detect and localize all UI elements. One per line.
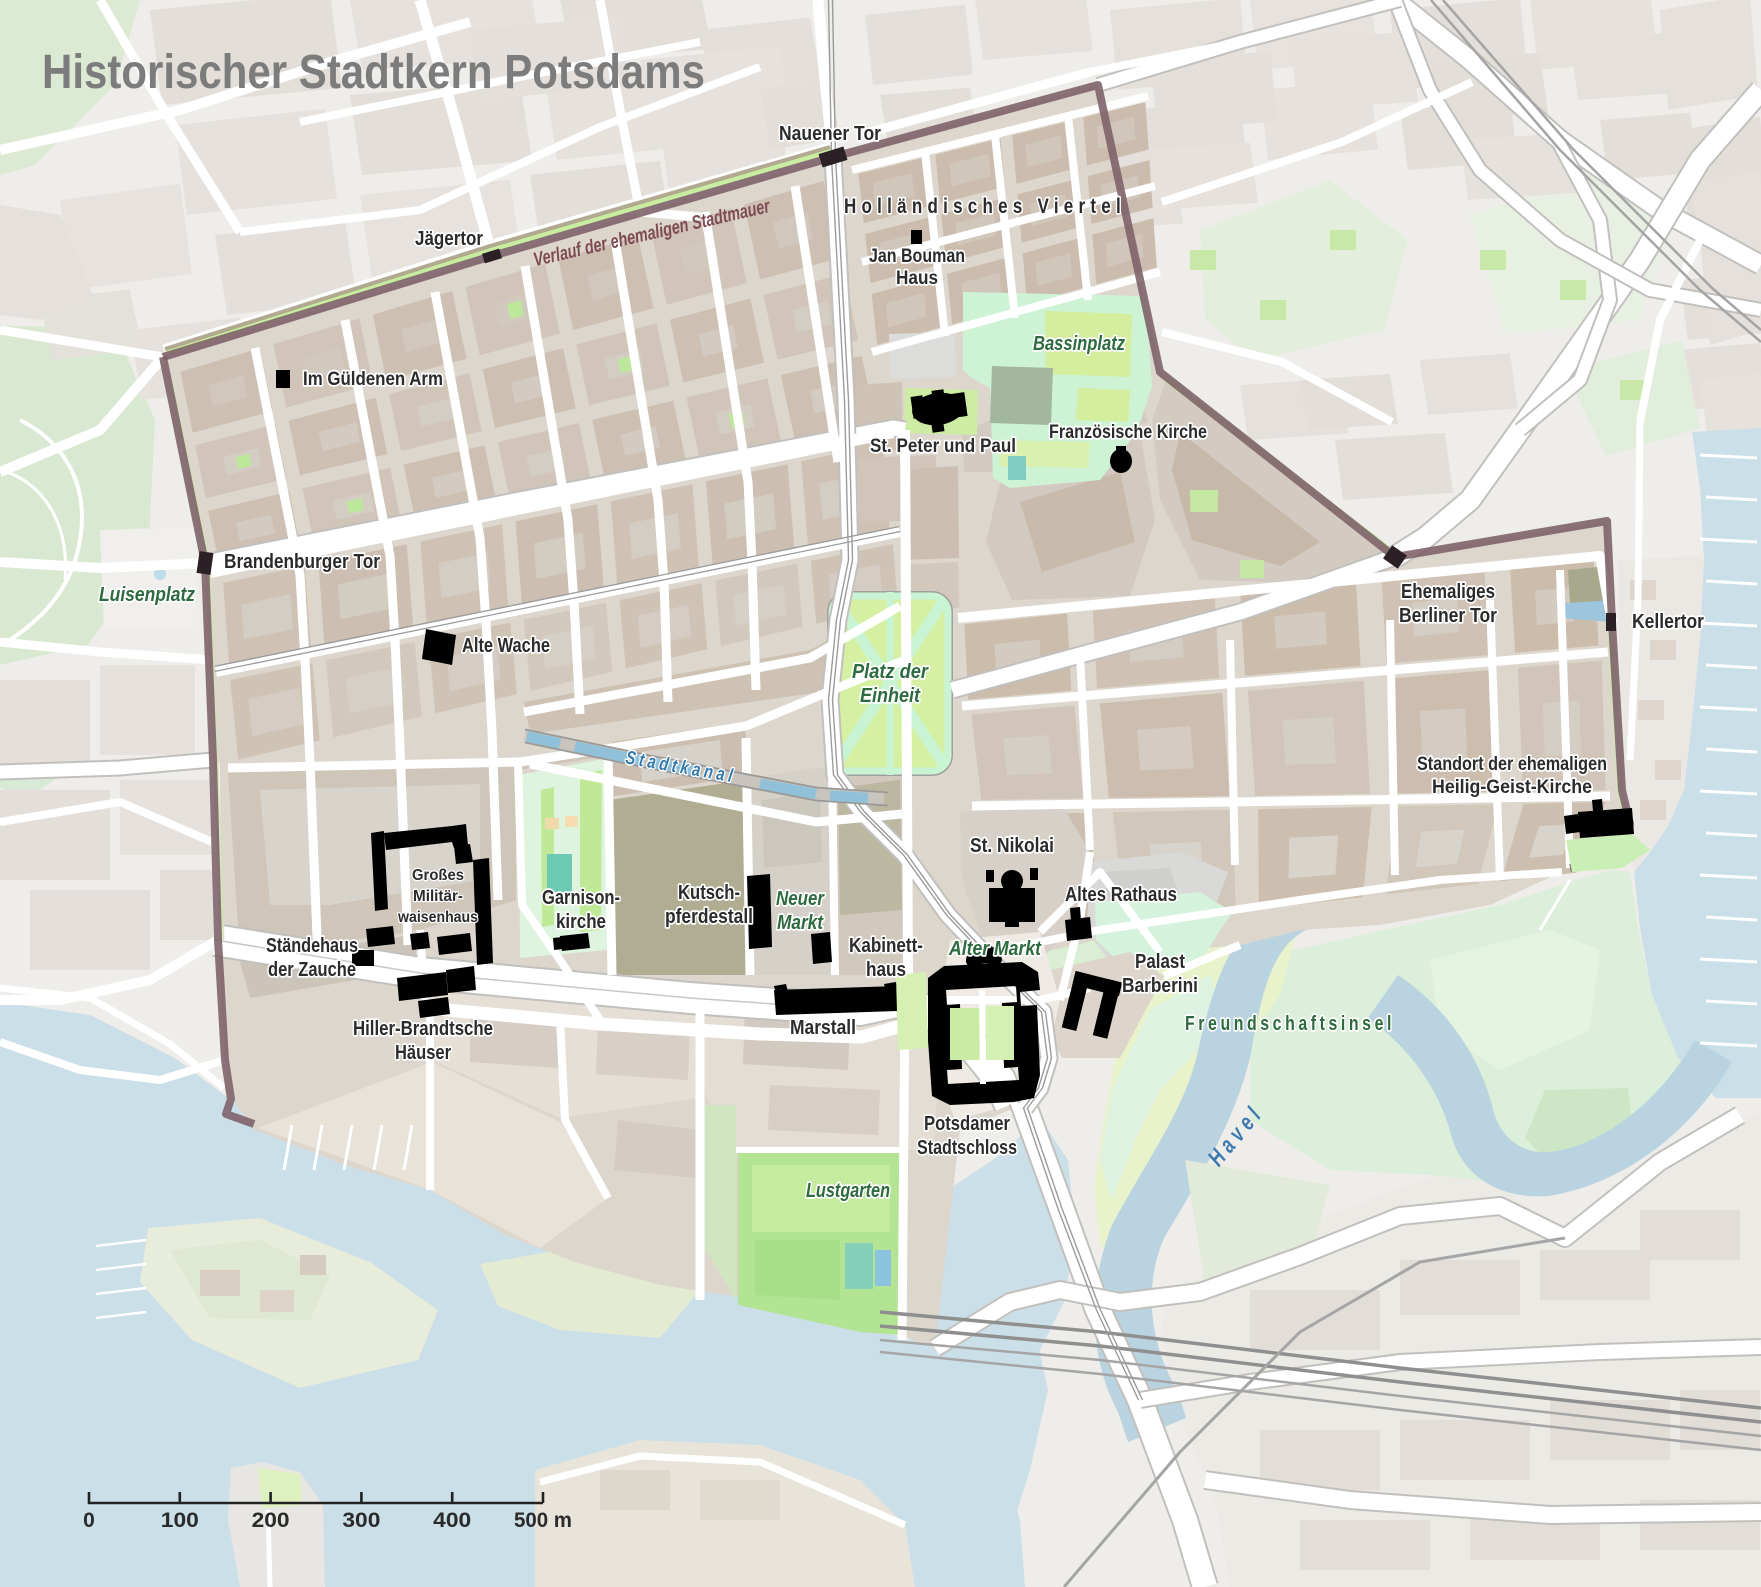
svg-text:Ehemaliges: Ehemaliges <box>1401 581 1495 603</box>
svg-text:Haus: Haus <box>896 268 938 289</box>
svg-text:Neuer: Neuer <box>776 888 825 910</box>
svg-text:Stadtschloss: Stadtschloss <box>917 1137 1017 1159</box>
svg-text:Standort der ehemaligen: Standort der ehemaligen <box>1417 754 1607 775</box>
svg-text:Barberini: Barberini <box>1122 975 1198 997</box>
svg-text:Bassinplatz: Bassinplatz <box>1033 333 1125 355</box>
svg-text:Französische Kirche: Französische Kirche <box>1049 422 1207 443</box>
svg-text:Häuser: Häuser <box>395 1042 451 1064</box>
svg-text:Marstall: Marstall <box>790 1017 856 1039</box>
svg-text:Berliner Tor: Berliner Tor <box>1399 605 1497 627</box>
svg-text:Markt: Markt <box>777 912 824 934</box>
svg-text:pferdestall: pferdestall <box>665 906 753 928</box>
svg-text:500 m: 500 m <box>514 1509 572 1532</box>
svg-text:Ständehaus: Ständehaus <box>266 935 358 957</box>
svg-text:haus: haus <box>866 959 906 981</box>
svg-text:Luisenplatz: Luisenplatz <box>99 584 195 606</box>
svg-text:Platz der: Platz der <box>852 661 929 683</box>
svg-text:Nauener Tor: Nauener Tor <box>779 123 881 145</box>
svg-text:Garnison-: Garnison- <box>542 887 620 909</box>
svg-text:Kabinett-: Kabinett- <box>849 935 923 957</box>
svg-text:Historischer Stadtkern Potsdam: Historischer Stadtkern Potsdams <box>42 46 705 99</box>
svg-text:400: 400 <box>433 1509 471 1532</box>
svg-text:200: 200 <box>252 1509 290 1532</box>
svg-text:Im Güldenen Arm: Im Güldenen Arm <box>303 369 443 390</box>
svg-text:Holländisches Viertel: Holländisches Viertel <box>844 195 1126 218</box>
svg-text:Lustgarten: Lustgarten <box>806 1180 890 1202</box>
svg-text:Freundschaftsinsel: Freundschaftsinsel <box>1185 1013 1395 1035</box>
svg-text:Brandenburger Tor: Brandenburger Tor <box>224 551 380 573</box>
svg-text:kirche: kirche <box>556 911 606 933</box>
svg-text:100: 100 <box>161 1509 199 1532</box>
svg-text:Hiller-Brandtsche: Hiller-Brandtsche <box>353 1018 493 1040</box>
svg-text:Alter Markt: Alter Markt <box>948 938 1042 960</box>
svg-text:Kellertor: Kellertor <box>1632 611 1704 633</box>
svg-text:300: 300 <box>342 1509 380 1532</box>
svg-text:Alte Wache: Alte Wache <box>462 635 550 657</box>
svg-text:Militär-: Militär- <box>413 888 463 905</box>
svg-text:St. Nikolai: St. Nikolai <box>970 835 1054 857</box>
svg-text:waisenhaus: waisenhaus <box>397 909 478 926</box>
svg-text:Heilig-Geist-Kirche: Heilig-Geist-Kirche <box>1432 777 1592 798</box>
svg-text:der Zauche: der Zauche <box>268 959 356 981</box>
svg-text:Potsdamer: Potsdamer <box>924 1113 1010 1135</box>
svg-text:Kutsch-: Kutsch- <box>678 882 740 904</box>
svg-text:Großes: Großes <box>412 867 464 884</box>
svg-text:0: 0 <box>83 1509 95 1532</box>
svg-text:Altes Rathaus: Altes Rathaus <box>1065 884 1177 906</box>
svg-text:Jan Bouman: Jan Bouman <box>869 246 965 267</box>
svg-text:Einheit: Einheit <box>860 685 921 707</box>
svg-text:St. Peter und Paul: St. Peter und Paul <box>870 436 1016 457</box>
svg-text:Palast: Palast <box>1135 951 1185 973</box>
svg-text:Jägertor: Jägertor <box>415 228 483 250</box>
